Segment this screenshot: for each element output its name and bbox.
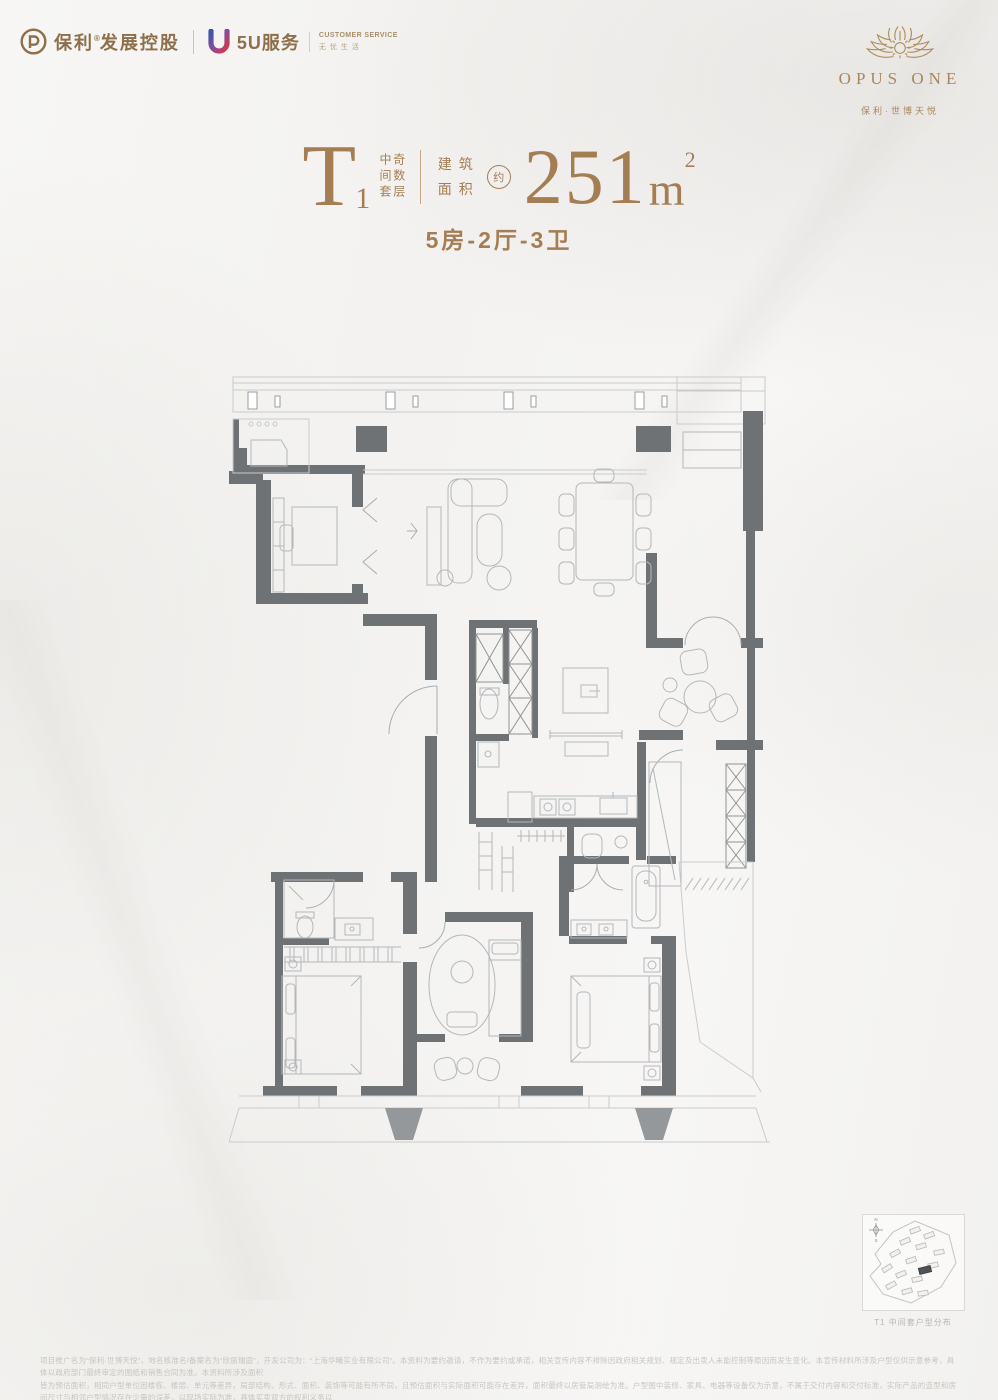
brand-divider [193, 30, 194, 54]
unit-tag-oddfloor: 奇数层 [391, 153, 405, 201]
unit-tags: 中间套 奇数层 [377, 153, 405, 201]
unit-title: T 1 中间套 奇数层 建筑 面积 约 251 m 2 [0, 144, 998, 211]
service-en: CUSTOMER SERVICE [319, 32, 398, 39]
area-label: 建筑 面积 [438, 152, 480, 202]
layout-summary: 5房-2厅-3卫 [0, 221, 998, 255]
site-plan-map: N S [863, 1215, 962, 1308]
terrace [679, 862, 761, 1092]
area-superscript: 2 [685, 149, 696, 171]
floor-plan [229, 368, 770, 1144]
elevator-core [476, 630, 746, 868]
disclaimer: 项目推广名为“保利·世博天悦”，地名核准名/备案名为“欣丽瑞庭”，开发公司为：“… [40, 1355, 958, 1400]
balcony-band-bottom [229, 1096, 770, 1142]
poly-logo-icon [20, 28, 47, 55]
disclaimer-line-1: 项目推广名为“保利·世博天悦”，地名核准名/备案名为“欣丽瑞庭”，开发公司为：“… [40, 1355, 958, 1380]
unit-tag-middle: 中间套 [377, 153, 391, 201]
approx-badge: 约 [487, 165, 511, 189]
service-tagline: CUSTOMER SERVICE 无忧生活 [309, 32, 398, 52]
unit-model-letter: T [302, 144, 356, 211]
walls [229, 411, 763, 1096]
site-plan: N S [862, 1214, 965, 1311]
compass-icon [869, 1223, 883, 1237]
svg-text:N: N [874, 1217, 877, 1222]
header-brand-left: 保利®发展控股 5U服务 CUSTOMER SERVICE 无忧生活 [20, 28, 398, 55]
highlighted-building [918, 1266, 931, 1275]
poly-brand-text: 保利®发展控股 [54, 29, 180, 55]
unit-model-index: 1 [355, 187, 370, 211]
poster: 保利®发展控股 5U服务 CUSTOMER SERVICE 无忧生活 [0, 0, 998, 1400]
phoenix-emblem-icon [864, 20, 936, 66]
title-divider [420, 150, 421, 204]
svg-text:S: S [874, 1238, 877, 1243]
area-unit: m [649, 173, 685, 208]
site-plan-caption: T1 中间套户型分布 [800, 1317, 998, 1328]
disclaimer-line-2: 皆为预估面积，相同户型单位因楼栋、楼层、单元等差异，局部结构、形式、面积、装饰等… [40, 1380, 958, 1400]
opus-one-wordmark: OPUS ONE [816, 69, 984, 89]
balcony-band-top [233, 377, 765, 424]
header-brand-right: OPUS ONE 保利·世博天悦 [816, 20, 984, 117]
five-u-icon [207, 29, 231, 55]
area-number: 251 [524, 147, 647, 208]
unit-model: T 1 [302, 144, 370, 211]
service-brand-text: 5U服务 [237, 29, 300, 55]
area-value: 251 m 2 [524, 147, 696, 208]
project-name: 保利·世博天悦 [816, 104, 984, 117]
service-cn: 无忧生活 [319, 42, 398, 52]
